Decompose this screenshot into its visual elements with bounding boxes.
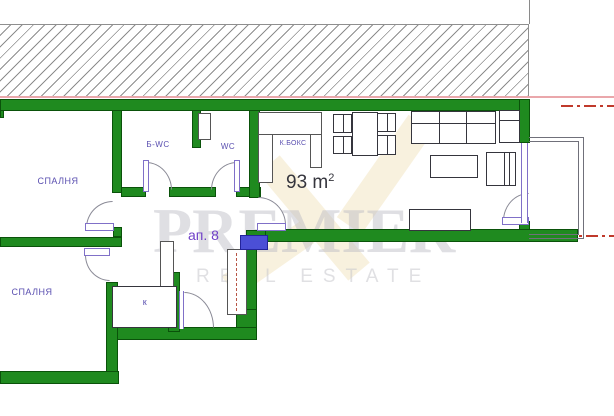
label-area: 93 m2 <box>286 172 328 194</box>
dining-chair <box>333 136 352 154</box>
living-door-leaf <box>257 223 286 231</box>
duct-shaft <box>198 113 211 140</box>
sofa <box>411 111 496 144</box>
wall-outer-top <box>0 99 530 111</box>
label-bathroom: Б-WC <box>136 140 180 149</box>
boundary-line-pink <box>0 96 614 98</box>
closet-box <box>112 286 177 328</box>
hall-wardrobe <box>160 241 174 287</box>
wall-left-sliver <box>0 110 4 118</box>
entry-axis-dash <box>236 253 237 311</box>
bedroom1-door-leaf <box>85 223 114 231</box>
dining-table <box>352 112 378 156</box>
floor-plan: PREMIER REAL ESTATE <box>0 0 614 416</box>
label-wc: WC <box>210 142 246 151</box>
label-apartment: ап. 8 <box>188 227 219 243</box>
boundary-line-vertical <box>529 0 530 24</box>
coffee-table <box>430 155 478 178</box>
bathroom-door-leaf <box>143 160 149 192</box>
bathroom-door-arc <box>146 162 172 190</box>
dining-chair <box>377 113 396 132</box>
vestibule-door-leaf <box>179 291 184 329</box>
kitchen-counter-top <box>258 112 322 135</box>
label-area-sup: 2 <box>328 172 334 184</box>
wall-between-bedrooms <box>0 237 122 247</box>
dining-chair <box>377 135 396 155</box>
dining-chair <box>333 114 352 133</box>
vestibule-door-arc <box>184 292 214 328</box>
label-area-value: 93 m <box>286 172 328 193</box>
entrance-marker <box>240 235 268 250</box>
balcony-outline-inner <box>529 141 579 235</box>
wall-bedroom1-right <box>112 110 122 193</box>
wc-door-leaf <box>234 160 240 192</box>
window-right <box>521 143 528 223</box>
label-kitchen-box: К.БОКС <box>268 140 318 147</box>
corner-unit <box>499 110 520 143</box>
tv-cabinet <box>409 209 471 231</box>
hatched-roof-strip <box>0 24 529 97</box>
wall-between-bedrooms-stub <box>113 227 122 237</box>
bedroom2-door-leaf <box>84 248 110 256</box>
label-bedroom-bottom: СПАЛНЯ <box>2 287 62 297</box>
bedroom2-door-arc <box>85 255 110 281</box>
entry-wardrobe <box>227 249 247 315</box>
wall-bedroom2-bottom <box>0 371 119 384</box>
label-bedroom-top: СПАЛНЯ <box>28 176 88 186</box>
wall-bath-bottom-b <box>169 187 216 197</box>
label-closet: к <box>136 297 154 307</box>
axis-line-top <box>561 105 614 107</box>
armchair-unit <box>486 152 516 186</box>
